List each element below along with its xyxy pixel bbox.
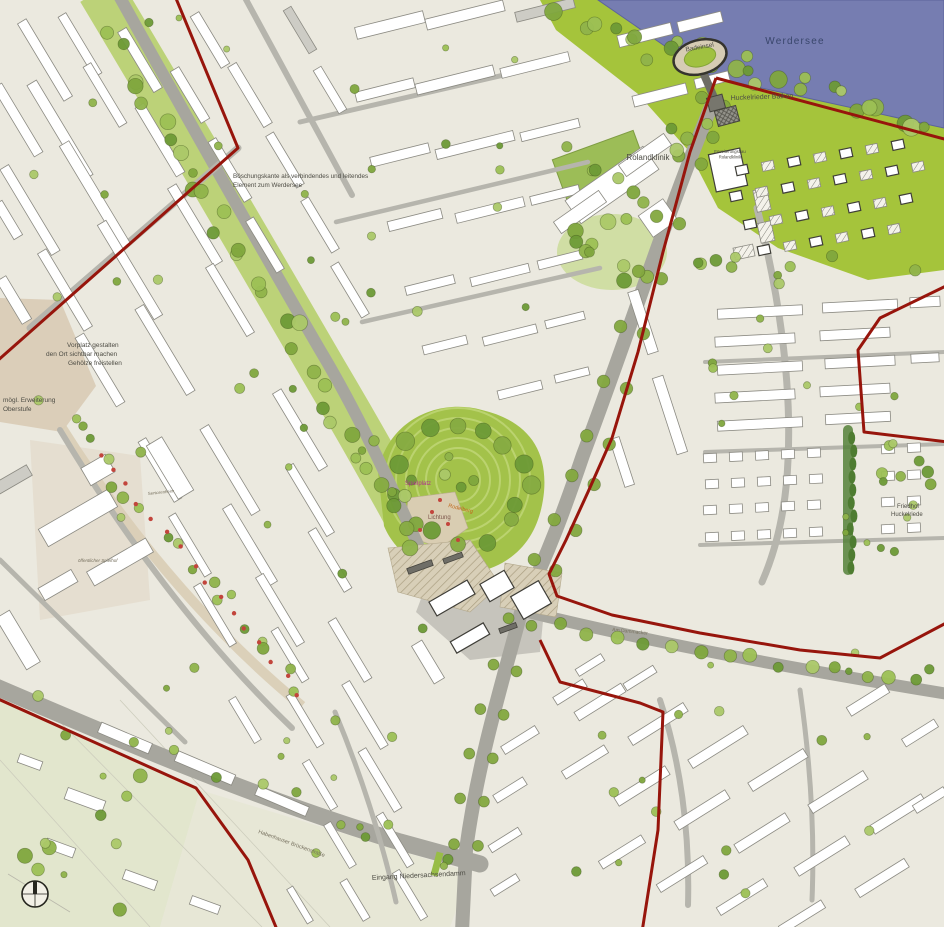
tree (30, 170, 39, 179)
tree (160, 114, 176, 130)
tree (350, 84, 359, 93)
tree (250, 369, 259, 378)
tree (251, 277, 265, 291)
tree (188, 168, 197, 177)
building (907, 470, 920, 480)
tree (129, 737, 139, 747)
building (783, 528, 796, 538)
tree (387, 487, 396, 496)
tree (621, 213, 632, 224)
tree (464, 748, 475, 759)
label-spielplatz: Spielplatz (405, 481, 431, 487)
building (755, 503, 768, 513)
flowering-tree-dot (123, 481, 127, 485)
label-vorplatz-1: Vorplatz gestalten (67, 342, 119, 349)
tree (165, 134, 177, 146)
tree (117, 513, 125, 521)
tree (498, 709, 509, 720)
tree (128, 78, 144, 94)
building (873, 197, 887, 208)
tree (674, 710, 682, 718)
tree (421, 419, 439, 437)
tree (278, 753, 284, 759)
tree (217, 205, 231, 219)
tree (224, 46, 230, 52)
tree (587, 17, 601, 31)
label-vorplatz-2: den Ort sichtbar machen (46, 351, 118, 358)
tree (850, 536, 857, 549)
tree (693, 258, 703, 268)
building (755, 186, 769, 197)
tree (708, 662, 714, 668)
tree (439, 469, 450, 480)
tree (387, 498, 401, 512)
label-gruenverbindung-1: Böschungskante als verbindendes und leit… (233, 173, 368, 180)
tree (528, 553, 541, 566)
tree (615, 859, 622, 866)
tree (101, 26, 114, 39)
building (703, 505, 716, 515)
building (881, 497, 894, 507)
building (705, 479, 718, 489)
tree (456, 482, 466, 492)
tree (614, 320, 627, 333)
tree (351, 453, 361, 463)
tree (358, 447, 366, 455)
tree (79, 422, 88, 431)
label-lichtung: Lichtung (428, 515, 451, 521)
tree (211, 772, 221, 782)
building (809, 527, 822, 537)
flowering-tree-dot (111, 468, 115, 472)
tree (374, 478, 389, 493)
building (781, 182, 795, 193)
tree (850, 510, 857, 523)
flowering-tree-dot (286, 674, 290, 678)
building (885, 165, 899, 176)
tree (367, 232, 375, 240)
flowering-tree-dot (194, 564, 198, 568)
tree (922, 466, 934, 478)
tree (285, 342, 297, 354)
tree (889, 439, 897, 447)
tree (910, 265, 921, 276)
tree (450, 418, 466, 434)
tree (730, 391, 739, 400)
tree (580, 429, 593, 442)
tree (522, 303, 529, 310)
tree (702, 118, 713, 129)
tree (475, 423, 491, 439)
tree (730, 252, 740, 262)
building (783, 240, 797, 251)
tree (637, 638, 649, 650)
tree (632, 265, 645, 278)
building (761, 160, 775, 171)
building (839, 148, 853, 159)
building (787, 156, 801, 167)
tree (718, 420, 725, 427)
tree (773, 662, 783, 672)
tree (292, 315, 308, 331)
tree (511, 666, 522, 677)
tree (442, 45, 448, 51)
tree (286, 664, 296, 674)
tree (390, 455, 409, 474)
building (881, 524, 894, 534)
tree (136, 447, 146, 457)
tree (307, 365, 321, 379)
tree (176, 15, 182, 21)
tree (617, 273, 632, 288)
tree (817, 735, 827, 745)
building (911, 353, 939, 363)
tree (515, 455, 533, 473)
tree (826, 250, 837, 261)
building (731, 531, 744, 541)
tree (17, 848, 32, 863)
flowering-tree-dot (268, 660, 272, 664)
tree (289, 385, 296, 392)
tree (728, 60, 745, 77)
tree (214, 142, 222, 150)
tree (331, 716, 340, 725)
tree (284, 737, 290, 743)
tree (324, 416, 337, 429)
tree (879, 477, 887, 485)
tree (566, 469, 579, 482)
label-spielhof: öffentlicher Spielhof (78, 558, 118, 563)
tree (400, 521, 414, 535)
tree (609, 787, 619, 797)
tree (61, 871, 67, 877)
tree (843, 514, 849, 520)
tree (475, 704, 486, 715)
tree (292, 787, 302, 797)
tree (580, 628, 593, 641)
tree (111, 839, 121, 849)
label-friedhof-2: Huckelriede (891, 512, 923, 518)
tree (741, 51, 752, 62)
tree (774, 271, 782, 279)
flowering-tree-dot (203, 580, 207, 584)
tree (843, 530, 849, 536)
tree (799, 72, 810, 83)
tree (794, 83, 807, 96)
tree (849, 458, 856, 471)
tree (848, 549, 855, 562)
tree (562, 142, 572, 152)
tree (488, 659, 499, 670)
tree (423, 522, 441, 540)
tree (774, 278, 785, 289)
building (833, 174, 847, 185)
tree (756, 315, 764, 323)
tree (86, 434, 94, 442)
tree (163, 685, 169, 691)
tree (469, 475, 479, 485)
tree (890, 547, 899, 556)
label-erweiterung-oberstufe-1: mögl. Erweiterung (3, 397, 56, 404)
building (729, 504, 742, 514)
tree (133, 769, 147, 783)
tree (479, 535, 496, 552)
tree (714, 706, 724, 716)
tree (914, 456, 924, 466)
tree (345, 427, 360, 442)
tree (627, 186, 640, 199)
tree (32, 863, 45, 876)
tree (803, 382, 810, 389)
tree (891, 392, 899, 400)
tree (122, 791, 132, 801)
tree (584, 247, 594, 257)
tree (412, 306, 422, 316)
label-erweiterung-oberstufe-2: Oberstufe (3, 406, 32, 413)
building (781, 501, 794, 511)
tree (360, 462, 372, 474)
tree (925, 479, 936, 490)
tree (743, 648, 757, 662)
tree (53, 293, 62, 302)
tree (724, 650, 737, 663)
play-point (446, 522, 450, 526)
tree (707, 131, 720, 144)
tree (169, 745, 178, 754)
tree (598, 731, 606, 739)
flowering-tree-dot (148, 517, 152, 521)
tree (118, 38, 130, 50)
tree (285, 464, 292, 471)
tree (545, 3, 563, 21)
play-point (456, 538, 460, 542)
tree (571, 867, 581, 877)
tree (665, 640, 678, 653)
building (757, 477, 770, 487)
label-gruenverbindung-2: Element zum Werdersee (233, 182, 303, 189)
play-point (418, 528, 422, 532)
label-erweiterungsbau-2: Rolandklinik (719, 155, 742, 160)
tree (369, 436, 380, 447)
tree (503, 613, 514, 624)
tree (597, 375, 610, 388)
flowering-tree-dot (257, 640, 261, 644)
building (809, 474, 822, 484)
tree (673, 217, 686, 230)
tree (848, 497, 855, 510)
tree (135, 97, 148, 110)
map-graphics (0, 0, 944, 927)
label-vorplatz-3: Gehölze freistellen (68, 360, 122, 367)
tree (710, 254, 722, 266)
flowering-tree-dot (219, 595, 223, 599)
tree (153, 275, 162, 284)
tree (666, 123, 677, 134)
tree (695, 158, 708, 171)
label-werdersee: Werdersee (765, 36, 825, 47)
tree (445, 453, 453, 461)
tree (829, 662, 840, 673)
tree (384, 820, 393, 829)
tree (106, 482, 117, 493)
tree (331, 312, 340, 321)
label-rolandklinik: Rolandklinik (626, 153, 670, 162)
tree (836, 86, 846, 96)
building (807, 178, 821, 189)
tree (472, 840, 483, 851)
tree (741, 889, 750, 898)
tree (104, 454, 114, 464)
tree (726, 262, 737, 273)
tree (145, 18, 154, 27)
building (757, 530, 770, 540)
tree (763, 344, 772, 353)
play-point (430, 510, 434, 514)
tree (627, 30, 641, 44)
building (705, 532, 718, 542)
tree (847, 562, 854, 575)
tree (845, 668, 852, 675)
tree (113, 277, 121, 285)
tree (522, 476, 540, 494)
tree (307, 257, 314, 264)
tree (876, 468, 887, 479)
tree (862, 100, 877, 115)
tree (342, 318, 349, 325)
tree (367, 288, 376, 297)
tree (504, 512, 518, 526)
tree (478, 796, 489, 807)
flowering-tree-dot (178, 544, 182, 548)
tree (173, 145, 188, 160)
tree (554, 617, 566, 629)
tree (209, 577, 220, 588)
tree (113, 903, 126, 916)
label-erweiterungsbau-1: Erweiterungsbau (714, 149, 746, 154)
tree (318, 379, 332, 393)
tree (337, 820, 346, 829)
tree (455, 793, 466, 804)
building (783, 475, 796, 485)
tree (911, 674, 922, 685)
tree (235, 383, 245, 393)
tree (526, 620, 537, 631)
building (769, 214, 783, 225)
tree (849, 471, 856, 484)
tree (164, 533, 173, 542)
tree (924, 664, 934, 674)
building (743, 218, 757, 229)
tree (695, 645, 709, 659)
tree (670, 143, 684, 157)
building (891, 139, 905, 150)
flowering-tree-dot (242, 626, 246, 630)
building (835, 232, 849, 243)
tree (877, 544, 884, 551)
building (729, 452, 742, 462)
tree (919, 122, 929, 132)
building (795, 210, 809, 221)
tree (641, 54, 653, 66)
tree (117, 492, 129, 504)
tree (743, 66, 753, 76)
building (907, 443, 920, 453)
building (807, 448, 820, 458)
tree (361, 833, 370, 842)
tree (338, 569, 347, 578)
tree (368, 165, 376, 173)
tree (487, 753, 498, 764)
tree (316, 402, 329, 415)
tree (862, 671, 873, 682)
building (911, 161, 925, 172)
tree (207, 227, 219, 239)
tree (709, 364, 718, 373)
building (813, 152, 827, 163)
building (887, 223, 901, 234)
tree (331, 775, 337, 781)
masterplan-map: Werdersee Badeinsel Huckelrieder Balkon … (0, 0, 944, 927)
tree (258, 779, 268, 789)
building (899, 193, 913, 204)
tree (511, 56, 518, 63)
building (735, 164, 749, 175)
tree (570, 235, 583, 248)
tree (507, 497, 522, 512)
tree (865, 826, 874, 835)
flowering-tree-dot (134, 502, 138, 506)
tree (398, 489, 411, 502)
tree (613, 173, 624, 184)
tree (89, 99, 97, 107)
tree (493, 203, 502, 212)
tree (301, 190, 308, 197)
flowering-tree-dot (99, 453, 103, 457)
building (809, 236, 823, 247)
tree (101, 191, 109, 199)
tree (849, 484, 856, 497)
tree (650, 210, 663, 223)
tree (719, 870, 729, 880)
tree (72, 414, 81, 423)
tree (497, 143, 503, 149)
tree (95, 810, 106, 821)
tree (806, 660, 819, 673)
tree (589, 164, 601, 176)
tree (440, 862, 447, 869)
tree (638, 197, 650, 209)
tree (227, 590, 236, 599)
building (907, 523, 920, 533)
tree (850, 445, 857, 458)
tree (40, 838, 50, 848)
tree (639, 777, 645, 783)
tree (418, 624, 427, 633)
tree (300, 424, 308, 432)
tree (264, 521, 271, 528)
building (807, 500, 820, 510)
flowering-tree-dot (295, 693, 299, 697)
building (781, 449, 794, 459)
tree (231, 243, 245, 257)
tree (617, 260, 630, 273)
building (757, 244, 771, 255)
building (821, 206, 835, 217)
tree (864, 733, 871, 740)
flowering-tree-dot (165, 530, 169, 534)
tree (190, 663, 199, 672)
tree (785, 261, 795, 271)
